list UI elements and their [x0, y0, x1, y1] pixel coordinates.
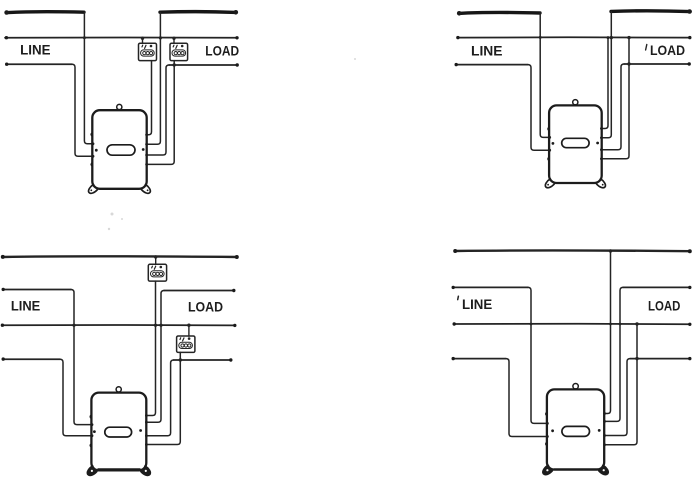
svg-text:LINE: LINE	[20, 42, 50, 58]
svg-text:LOAD: LOAD	[648, 297, 680, 313]
svg-text:LOAD: LOAD	[650, 42, 685, 58]
svg-text:LOAD: LOAD	[205, 43, 239, 59]
svg-text:LOAD: LOAD	[188, 299, 223, 315]
svg-text:LINE: LINE	[462, 296, 492, 312]
svg-text:LINE: LINE	[471, 43, 503, 59]
svg-text:LINE: LINE	[11, 298, 40, 314]
